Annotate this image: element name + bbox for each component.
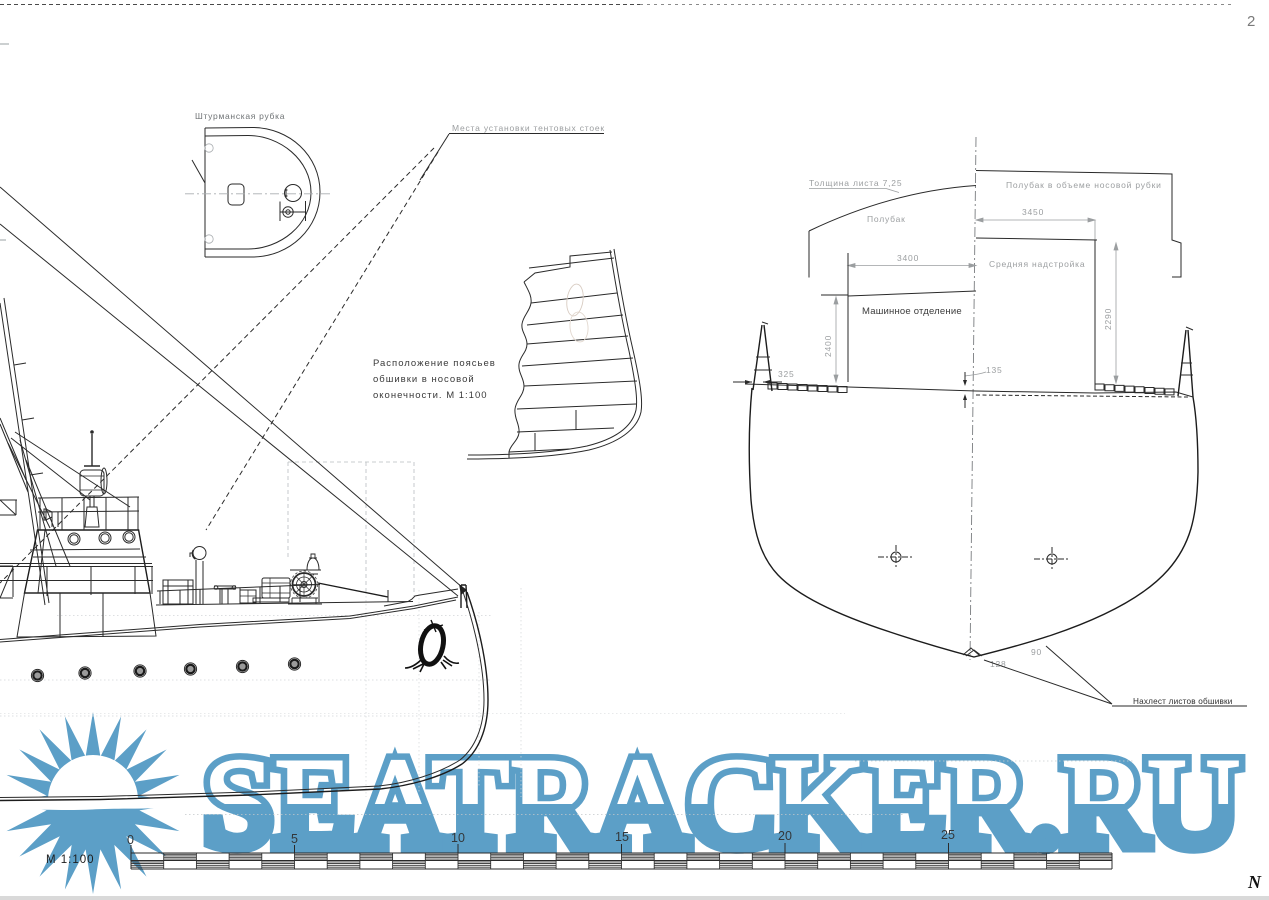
svg-text:N: N [1247, 872, 1262, 892]
svg-text:Штурманская рубка: Штурманская рубка [195, 111, 285, 121]
svg-text:Нахлест листов обшивки: Нахлест листов обшивки [1133, 697, 1233, 706]
svg-text:М 1:100: М 1:100 [46, 854, 95, 866]
svg-text:128: 128 [990, 659, 1007, 669]
svg-text:Толщина листа 7,25: Толщина листа 7,25 [809, 178, 902, 188]
svg-text:Места установки тентовых стоек: Места установки тентовых стоек [452, 123, 605, 133]
svg-text:обшивки в носовой: обшивки в носовой [373, 374, 475, 385]
svg-text:Полубак в объеме носовой рубки: Полубак в объеме носовой рубки [1006, 180, 1162, 190]
svg-text:3450: 3450 [1022, 207, 1044, 217]
svg-text:оконечности. М 1:100: оконечности. М 1:100 [373, 390, 488, 401]
svg-text:2290: 2290 [1103, 308, 1113, 330]
svg-text:5: 5 [291, 832, 298, 846]
svg-text:2400: 2400 [823, 335, 833, 357]
svg-text:Машинное отделение: Машинное отделение [862, 306, 962, 317]
svg-text:Полубак: Полубак [867, 214, 906, 224]
svg-text:2: 2 [1247, 13, 1255, 30]
svg-text:3400: 3400 [897, 253, 919, 263]
svg-text:325: 325 [778, 369, 795, 379]
svg-text:20: 20 [778, 829, 792, 843]
svg-text:Средняя надстройка: Средняя надстройка [989, 259, 1085, 269]
svg-text:135: 135 [986, 365, 1003, 375]
svg-text:25: 25 [941, 828, 955, 842]
svg-text:90: 90 [1031, 647, 1042, 657]
svg-text:15: 15 [615, 830, 629, 844]
svg-text:10: 10 [451, 831, 465, 845]
svg-text:Расположение поясьев: Расположение поясьев [373, 358, 496, 369]
svg-text:0: 0 [127, 833, 134, 847]
